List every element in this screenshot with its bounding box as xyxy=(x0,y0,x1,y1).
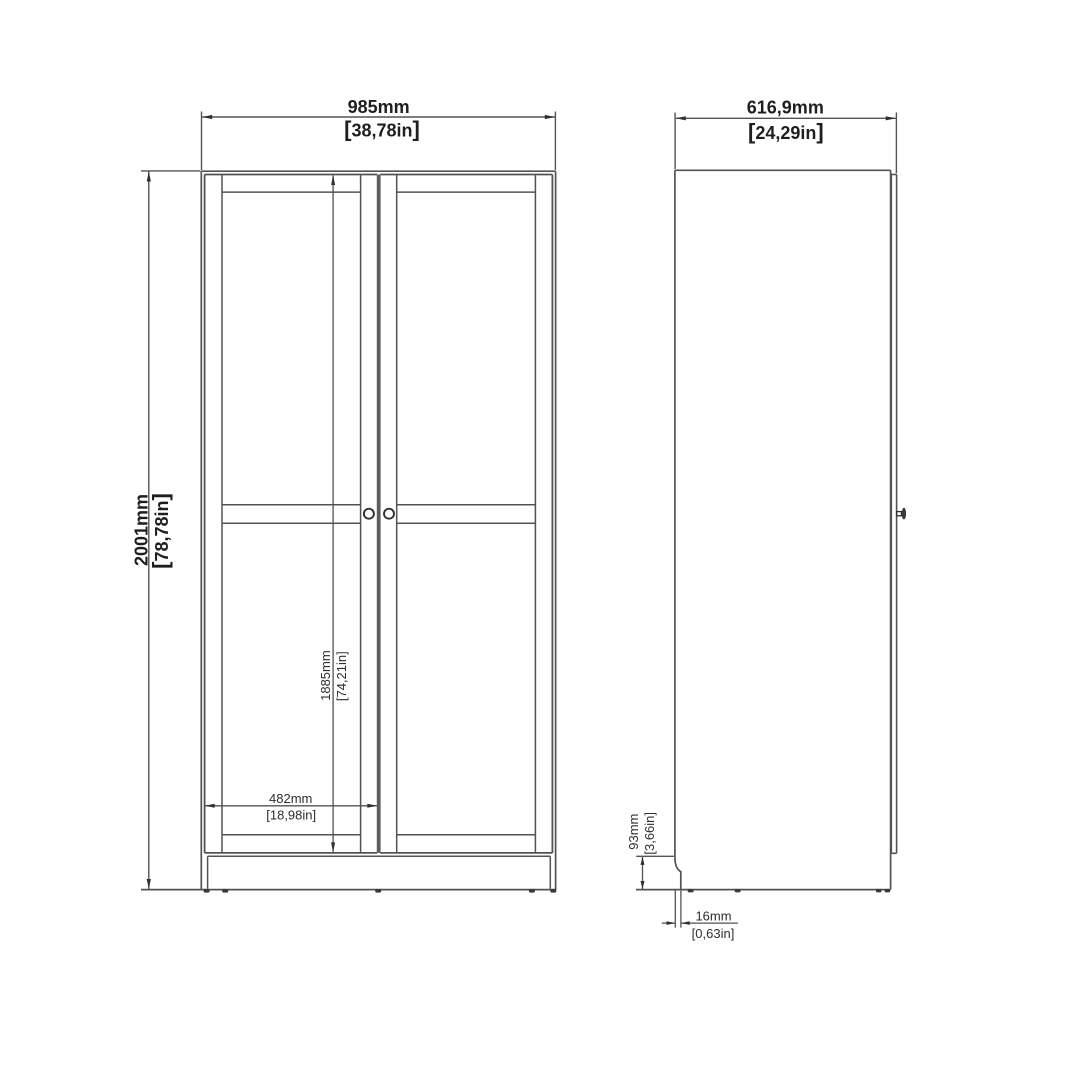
svg-text:985mm: 985mm xyxy=(348,97,410,117)
svg-text:[18,98in]: [18,98in] xyxy=(266,807,316,822)
svg-text:1885mm: 1885mm xyxy=(318,650,333,701)
svg-text:[74,21in]: [74,21in] xyxy=(334,651,349,701)
svg-text:482mm: 482mm xyxy=(269,791,312,806)
svg-text:93mm: 93mm xyxy=(626,814,641,850)
svg-text:[24,29in]: [24,29in] xyxy=(748,119,824,144)
svg-text:616,9mm: 616,9mm xyxy=(747,97,824,117)
svg-text:[0,63in]: [0,63in] xyxy=(692,926,735,941)
svg-text:16mm: 16mm xyxy=(695,909,731,924)
svg-text:[3,66in]: [3,66in] xyxy=(642,812,657,855)
svg-text:[78,78in]: [78,78in] xyxy=(148,493,173,569)
svg-text:[38,78in]: [38,78in] xyxy=(344,117,420,142)
svg-text:2001mm: 2001mm xyxy=(131,494,151,566)
